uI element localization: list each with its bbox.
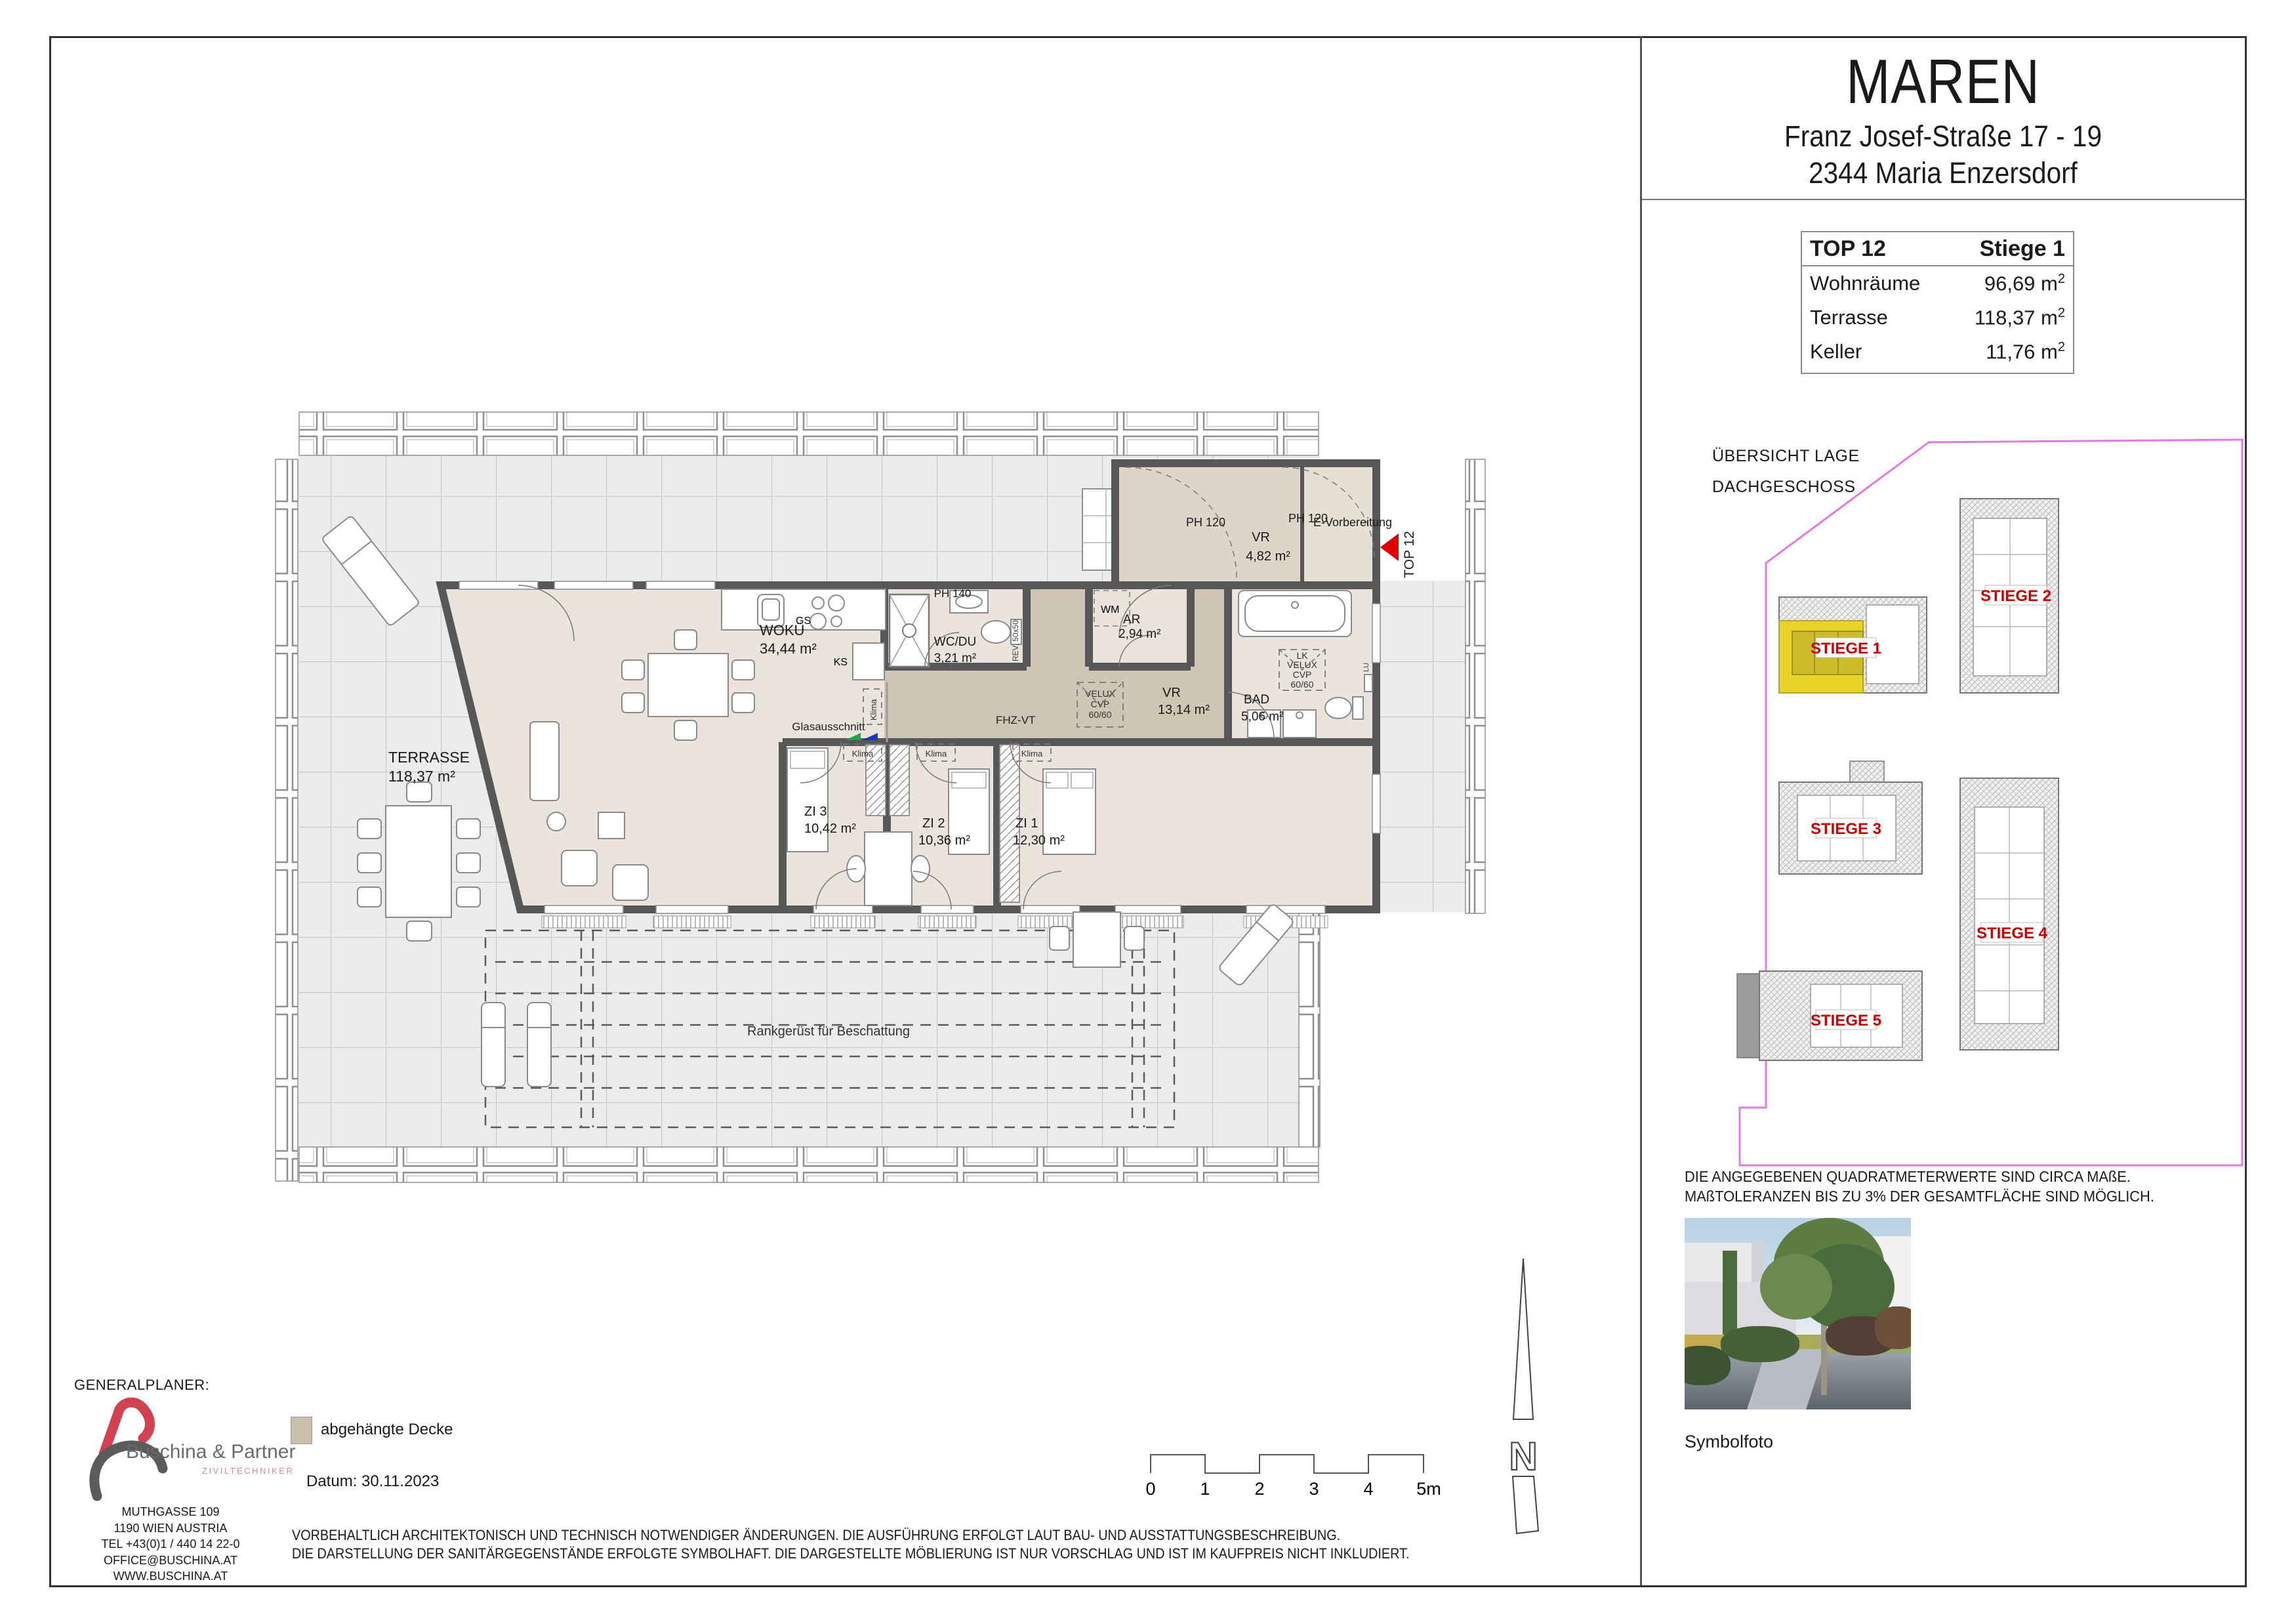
plan-sheet: MAREN Franz Josef-Straße 17 - 19 2344 Ma… bbox=[0, 0, 2296, 1624]
project-city: 2344 Maria Enzersdorf bbox=[1672, 155, 2214, 192]
svg-text:0: 0 bbox=[1145, 1479, 1155, 1499]
svg-text:CVP: CVP bbox=[1091, 699, 1110, 709]
svg-text:WOKÜ: WOKÜ bbox=[760, 622, 804, 638]
svg-text:3: 3 bbox=[1309, 1479, 1319, 1499]
svg-text:60/60: 60/60 bbox=[1290, 679, 1313, 690]
symbolfoto-image bbox=[1685, 1218, 1911, 1409]
svg-text:Klima: Klima bbox=[869, 699, 878, 720]
top12-arrow-label: TOP 12 bbox=[1402, 531, 1417, 578]
svg-text:STIEGE 4: STIEGE 4 bbox=[1977, 925, 2048, 942]
svg-text:12,30 m²: 12,30 m² bbox=[1013, 833, 1065, 848]
table-row: Keller 11,76 m2 bbox=[1802, 335, 2073, 369]
sqm-note: DIE ANGEGEBENEN QUADRATMETERWERTE SIND C… bbox=[1685, 1167, 2154, 1206]
panel-divider bbox=[1640, 36, 1642, 1585]
svg-text:PH 140: PH 140 bbox=[934, 587, 972, 600]
table-row: Terrasse 118,37 m2 bbox=[1802, 301, 2073, 335]
fhzvt-label: FHZ-VT bbox=[996, 714, 1035, 726]
lu-label: LU bbox=[1363, 663, 1370, 672]
svg-text:ZI 2: ZI 2 bbox=[922, 816, 945, 831]
svg-text:4: 4 bbox=[1363, 1479, 1373, 1499]
svg-text:VELUX: VELUX bbox=[1287, 659, 1318, 670]
svg-text:TERRASSE: TERRASSE bbox=[388, 749, 470, 766]
unit-area-table: TOP 12 Stiege 1 Wohnräume 96,69 m2 Terra… bbox=[1801, 231, 2074, 374]
project-street: Franz Josef-Straße 17 - 19 bbox=[1672, 118, 2214, 155]
disclaimer-note: VORBEHALTLICH ARCHITEKTONISCH UND TECHNI… bbox=[292, 1526, 1409, 1563]
floor-plan: Rankgerüst für Beschattung bbox=[262, 402, 1496, 1215]
svg-text:BAD: BAD bbox=[1244, 693, 1269, 707]
svg-text:STIEGE 5: STIEGE 5 bbox=[1811, 1012, 1881, 1030]
svg-text:ZI 3: ZI 3 bbox=[804, 804, 827, 819]
rev-label: REV. 50x50 bbox=[1011, 620, 1020, 661]
svg-text:STIEGE 1: STIEGE 1 bbox=[1811, 640, 1881, 657]
site-plan: STIEGE 1 STIEGE 2 STIEGE 3 STIEGE 4 STIE… bbox=[1706, 420, 2257, 1181]
svg-text:10,42 m²: 10,42 m² bbox=[804, 822, 856, 836]
svg-text:STIEGE 2: STIEGE 2 bbox=[1980, 587, 2051, 605]
legend-swatch-abgehaengte-decke bbox=[291, 1417, 312, 1444]
svg-text:2,94 m²: 2,94 m² bbox=[1118, 627, 1160, 641]
svg-text:Klima: Klima bbox=[926, 749, 947, 759]
svg-text:118,37 m²: 118,37 m² bbox=[388, 768, 455, 785]
svg-text:5,06 m²: 5,06 m² bbox=[1241, 710, 1283, 724]
svg-text:1: 1 bbox=[1200, 1479, 1210, 1499]
project-title: MAREN bbox=[1690, 46, 2196, 118]
header-rule bbox=[1642, 199, 2245, 200]
symbolfoto-caption: Symbolfoto bbox=[1685, 1432, 1773, 1452]
plan-date: Datum: 30.11.2023 bbox=[306, 1472, 439, 1491]
shower bbox=[890, 594, 929, 667]
svg-text:CVP: CVP bbox=[1293, 669, 1312, 680]
top12-arrow-icon bbox=[1380, 533, 1399, 561]
svg-text:10,36 m²: 10,36 m² bbox=[918, 833, 970, 848]
svg-text:60/60: 60/60 bbox=[1088, 709, 1111, 720]
fridge-label: KS bbox=[834, 657, 848, 668]
svg-text:5m: 5m bbox=[1416, 1479, 1441, 1499]
svg-text:PH 120: PH 120 bbox=[1186, 516, 1225, 529]
table-row: Wohnräume 96,69 m2 bbox=[1802, 266, 2073, 301]
legend-label: abgehängte Decke bbox=[321, 1421, 453, 1439]
svg-text:ZI 1: ZI 1 bbox=[1015, 816, 1038, 831]
scale-bar: 0 1 2 3 4 5m bbox=[1128, 1440, 1496, 1503]
pergola-label: Rankgerüst für Beschattung bbox=[747, 1024, 910, 1039]
unit-number: TOP 12 bbox=[1810, 236, 1886, 262]
svg-text:AR: AR bbox=[1123, 613, 1140, 627]
buschina-logo: Buschina & Partner ZIVILTECHNIKER bbox=[85, 1391, 308, 1503]
svg-text:VR: VR bbox=[1252, 530, 1270, 545]
site-building-stiege4 bbox=[1960, 778, 2059, 1050]
svg-text:WC/DU: WC/DU bbox=[934, 635, 976, 649]
svg-text:13,14 m²: 13,14 m² bbox=[1158, 703, 1210, 717]
logo-company: Buschina & Partner bbox=[126, 1441, 295, 1463]
logo-subtitle: ZIVILTECHNIKER bbox=[202, 1466, 294, 1476]
svg-text:STIEGE 3: STIEGE 3 bbox=[1811, 820, 1881, 838]
generalplaner-address: MUTHGASSE 109 1190 WIEN AUSTRIA TEL +43(… bbox=[79, 1504, 262, 1585]
svg-text:VELUX: VELUX bbox=[1085, 688, 1116, 699]
svg-text:34,44 m²: 34,44 m² bbox=[760, 640, 817, 657]
svg-text:3,21 m²: 3,21 m² bbox=[934, 652, 976, 665]
svg-text:4,82 m²: 4,82 m² bbox=[1246, 549, 1290, 564]
svg-text:2: 2 bbox=[1254, 1479, 1264, 1499]
glas-label: Glasausschnitt bbox=[792, 720, 865, 733]
svg-text:VR: VR bbox=[1162, 686, 1181, 700]
svg-text:N: N bbox=[1509, 1434, 1537, 1478]
site-building-stiege3 bbox=[1779, 761, 1922, 874]
svg-text:Klima: Klima bbox=[852, 749, 874, 759]
unit-stiege: Stiege 1 bbox=[1980, 236, 2065, 262]
title-block: MAREN Franz Josef-Straße 17 - 19 2344 Ma… bbox=[1642, 46, 2244, 192]
svg-text:E-Vorbereitung: E-Vorbereitung bbox=[1313, 516, 1392, 529]
svg-text:Klima: Klima bbox=[1021, 749, 1043, 759]
north-arrow-icon: N bbox=[1496, 1250, 1558, 1542]
wm-label: WM bbox=[1101, 604, 1119, 615]
